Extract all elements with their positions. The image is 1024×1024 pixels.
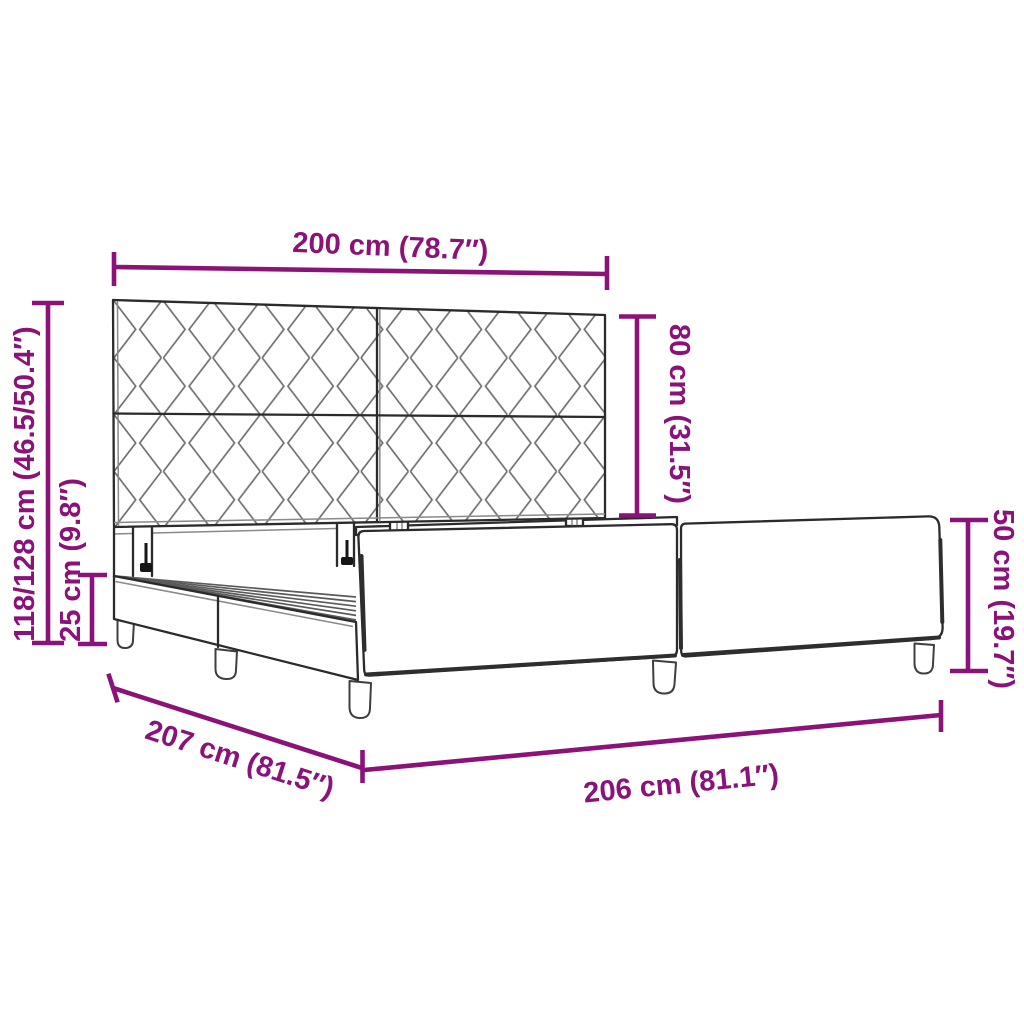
- dimension-frame-width: 207 cm (81.5″): [108, 674, 362, 805]
- dimension-base-height: 25 cm (9.8″): [55, 478, 107, 644]
- product-dimension-diagram: 200 cm (78.7″) 80 cm (31.5″) 118/128 cm …: [0, 0, 1024, 1024]
- dimension-line: [114, 267, 607, 274]
- foot: [915, 644, 935, 674]
- frame-length-label: 206 cm (81.1″): [582, 759, 780, 810]
- foot: [216, 649, 238, 679]
- total-height-label: 118/128 cm (46.5/50.4″): [9, 326, 41, 641]
- side-panel-1: [358, 524, 677, 675]
- dimension-frame-length: 206 cm (81.1″): [364, 700, 941, 810]
- base-height-label: 25 cm (9.8″): [55, 478, 87, 642]
- dimension-headboard-width: 200 cm (78.7″): [114, 227, 607, 290]
- headboard-height-label: 80 cm (31.5″): [663, 324, 695, 504]
- dimension-side-rail-height: 50 cm (19.7″): [950, 509, 1019, 689]
- side-rail-height-label: 50 cm (19.7″): [987, 509, 1019, 689]
- dimension-line: [364, 715, 941, 770]
- bed-frame-drawing: [100, 290, 943, 718]
- dimension-headboard-height: 80 cm (31.5″): [619, 317, 695, 516]
- diagram-svg: 200 cm (78.7″) 80 cm (31.5″) 118/128 cm …: [0, 0, 1024, 1024]
- foot: [350, 681, 372, 718]
- headboard-width-label: 200 cm (78.7″): [292, 227, 489, 267]
- foot: [653, 661, 676, 694]
- side-panel-2: [680, 516, 943, 656]
- headboard: [100, 290, 620, 540]
